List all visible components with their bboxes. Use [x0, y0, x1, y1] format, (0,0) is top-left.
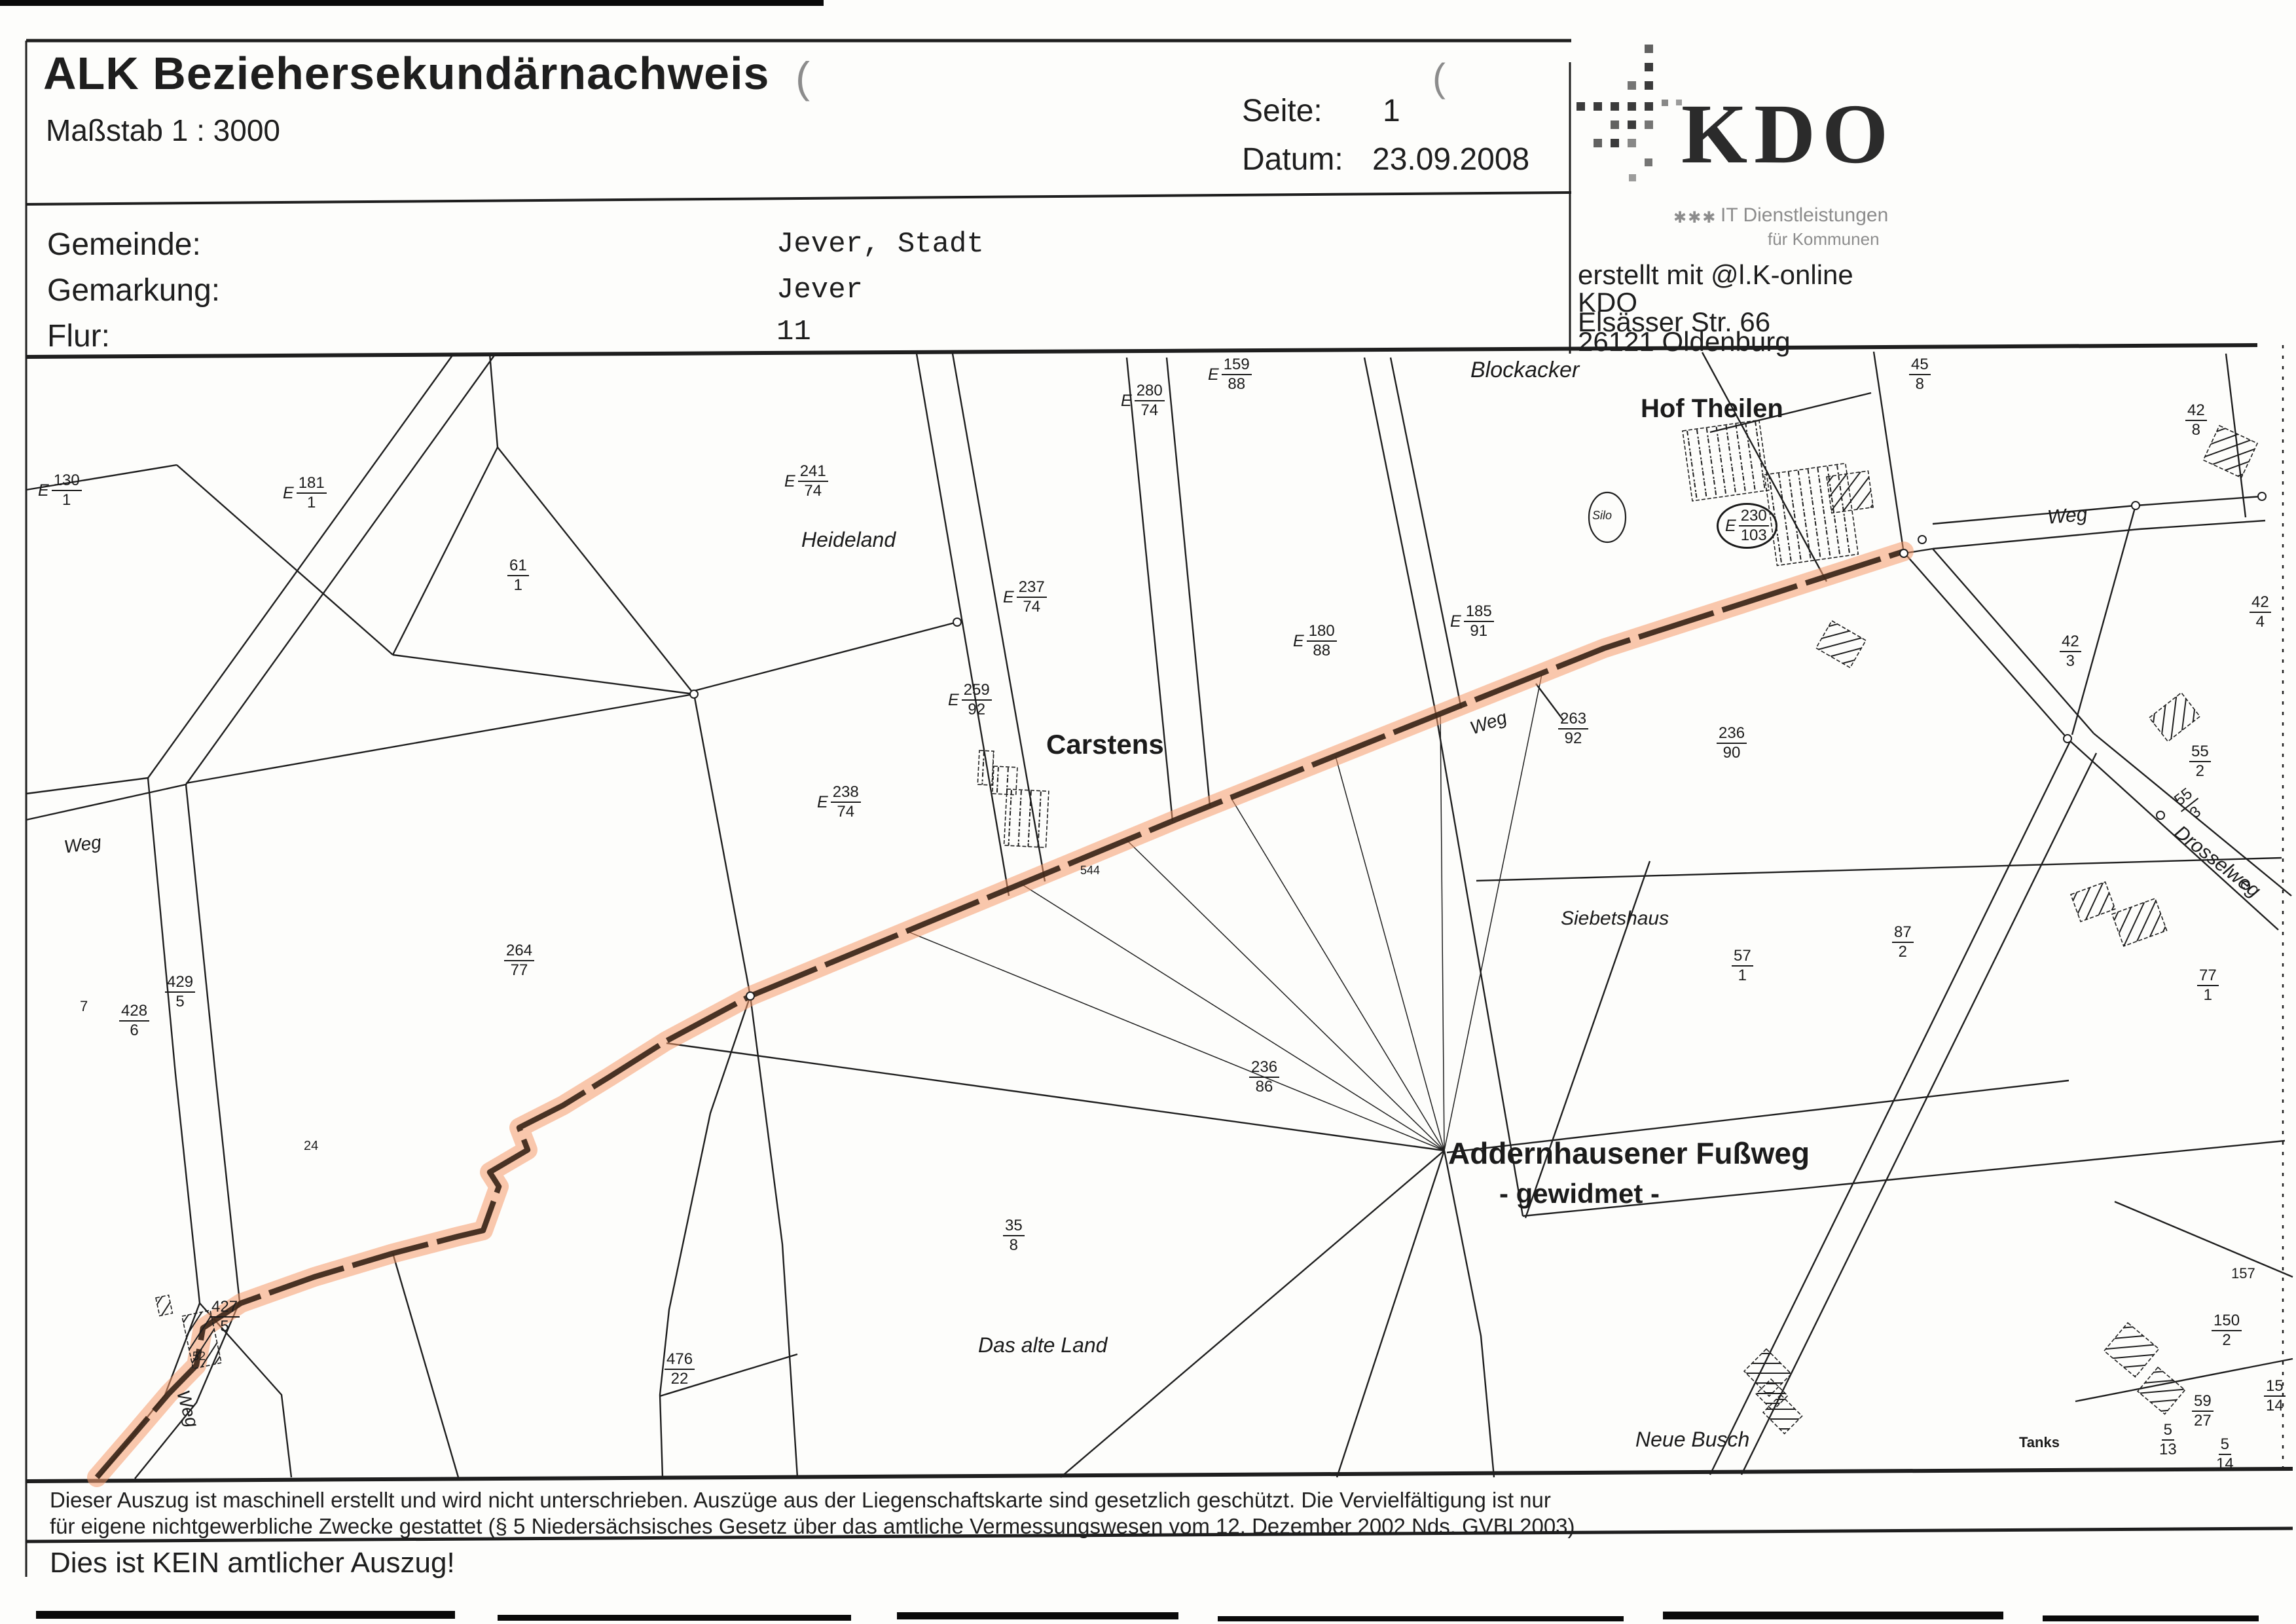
parcel-number-236-90: 23690: [1717, 726, 1747, 761]
map-label-hof-theilen: Hof Theilen: [1641, 396, 1783, 422]
map-label--gewidmet-: - gewidmet -: [1499, 1180, 1660, 1208]
map-label-weg: Weg: [2047, 505, 2088, 528]
parcel-number-236-86: 23686: [1249, 1060, 1279, 1095]
parcel-number-5-14: 514: [2216, 1437, 2234, 1472]
map-label-drosselweg: Drosselweg: [2171, 822, 2264, 901]
scanned-cadastral-extract: ALK Beziehersekundärnachweis ( Maßstab 1…: [0, 0, 2296, 1624]
footer-not-official-notice: Dies ist KEIN amtlicher Auszug!: [50, 1547, 455, 1579]
map-label-blockacker: Blockacker: [1470, 359, 1579, 381]
map-label-addernhausener-fußweg: Addernhausener Fußweg: [1448, 1138, 1810, 1168]
map-label-carstens: Carstens: [1046, 731, 1164, 758]
parcel-number-181-1: E1811: [283, 475, 327, 511]
parcel-number-230-103: E230103: [1717, 503, 1777, 549]
footer-disclaimer-line2: für eigene nichtgewerbliche Zwecke gesta…: [50, 1514, 1575, 1539]
parcel-number-57-1: 571: [1732, 948, 1753, 984]
parcel-number-237-74: E23774: [1003, 580, 1047, 615]
footer-disclaimer-line1: Dieser Auszug ist maschinell erstellt un…: [50, 1488, 1551, 1513]
parcel-number-42-4: 424: [2250, 595, 2271, 630]
map-label-7: 7: [80, 999, 88, 1014]
parcel-number-35-8: 358: [1003, 1218, 1025, 1253]
parcel-number-259-92: E25992: [948, 682, 992, 718]
parcel-number-280-74: E28074: [1121, 383, 1165, 418]
parcel-number-263-92: 26392: [1558, 711, 1588, 747]
map-label-weg: Weg: [63, 833, 102, 857]
parcel-number-61-1: 611: [507, 558, 529, 593]
map-label-weg: Weg: [173, 1388, 202, 1430]
parcel-number-428-6: 4286: [119, 1003, 149, 1039]
parcel-number-150-2: 1502: [2212, 1313, 2242, 1348]
map-label-tanks: Tanks: [2019, 1435, 2060, 1450]
parcel-number-185-91: E18591: [1450, 604, 1494, 639]
map-label-silo: Silo: [1592, 509, 1612, 521]
map-label-weg: Weg: [1468, 708, 1509, 737]
map-label-das-alte-land: Das alte Land: [978, 1335, 1107, 1356]
parcel-number-427-5: 4275: [210, 1299, 240, 1335]
map-label-layer: BlockackerHof TheilenHeidelandCarstensSi…: [0, 0, 2296, 1624]
map-label-heideland: Heideland: [801, 529, 896, 550]
parcel-number-42-3: 423: [2060, 634, 2081, 669]
map-label-52: 52: [192, 1350, 206, 1362]
map-label-neue-busch: Neue Busch: [1635, 1429, 1749, 1450]
parcel-number-429-5: 4295: [165, 974, 195, 1010]
parcel-number-42-8: 428: [2185, 403, 2207, 438]
map-label-24: 24: [304, 1139, 318, 1153]
parcel-number-87-2: 872: [1892, 925, 1914, 960]
parcel-number-55-3: 553: [2170, 784, 2209, 826]
map-label-157: 157: [2231, 1266, 2255, 1281]
parcel-number-77-1: 771: [2197, 968, 2219, 1003]
parcel-number-130-1: E1301: [38, 473, 82, 508]
parcel-number-238-74: E23874: [817, 784, 861, 820]
parcel-number-45-8: 458: [1909, 357, 1931, 392]
map-label-544: 544: [1080, 864, 1100, 876]
parcel-number-15-14: 1514: [2264, 1378, 2286, 1414]
parcel-number-476-22: 47622: [665, 1352, 695, 1387]
parcel-number-180-88: E18088: [1293, 623, 1337, 659]
parcel-number-59-27: 5927: [2192, 1393, 2214, 1429]
parcel-number-264-77: 26477: [504, 943, 534, 978]
parcel-number-55-2: 552: [2189, 744, 2211, 779]
parcel-number-159-88: E15988: [1208, 357, 1252, 392]
parcel-number-5-13: 513: [2159, 1422, 2177, 1458]
map-label-siebetshaus: Siebetshaus: [1561, 909, 1669, 929]
parcel-number-241-74: E24174: [784, 464, 828, 499]
